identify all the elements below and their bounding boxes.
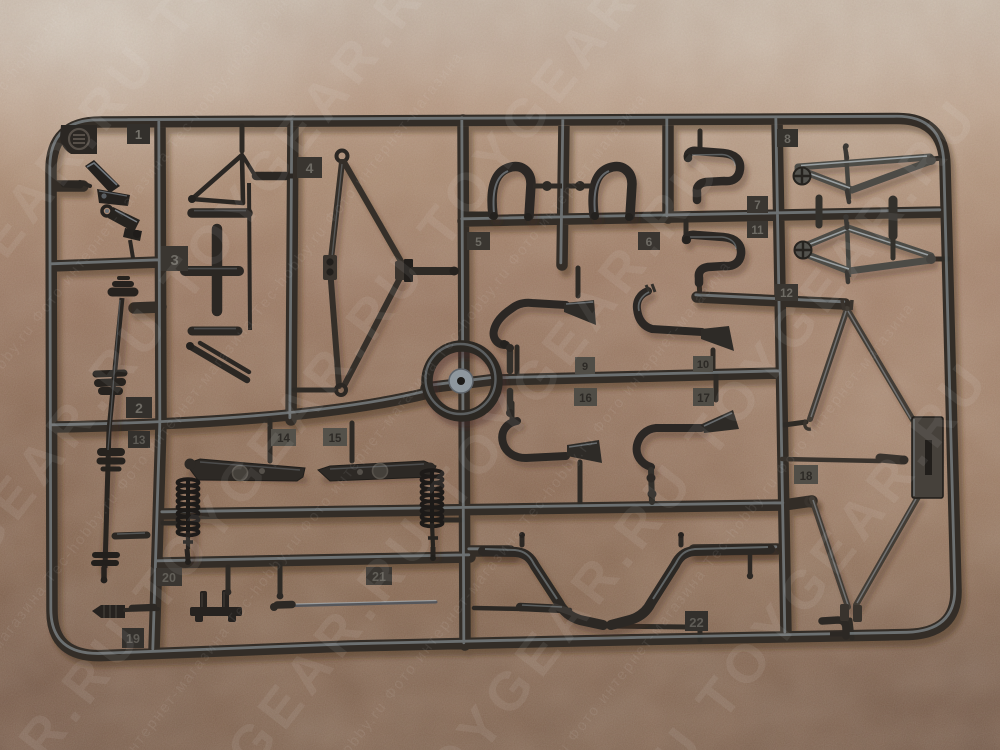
svg-text:5: 5	[475, 235, 482, 249]
svg-text:22: 22	[689, 615, 703, 630]
svg-text:18: 18	[800, 471, 813, 483]
svg-text:1: 1	[135, 127, 142, 142]
svg-text:10: 10	[697, 359, 709, 371]
svg-text:2: 2	[135, 400, 143, 416]
svg-text:11: 11	[751, 225, 764, 237]
svg-text:15: 15	[329, 433, 342, 445]
svg-text:16: 16	[579, 393, 592, 405]
svg-text:8: 8	[784, 132, 791, 146]
svg-text:7: 7	[754, 200, 760, 212]
